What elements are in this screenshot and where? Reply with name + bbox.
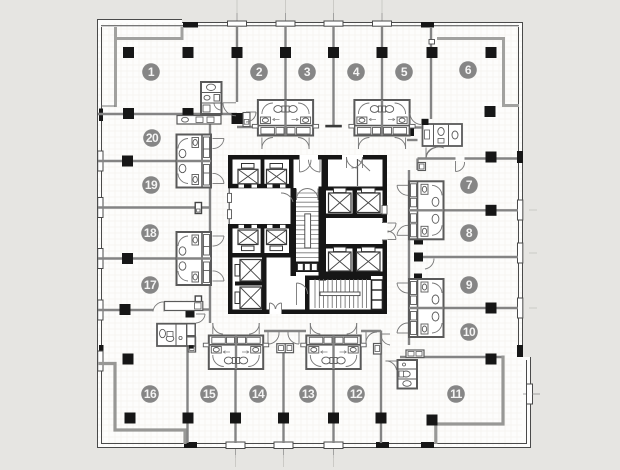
svg-text:17: 17 bbox=[144, 278, 157, 292]
svg-text:3: 3 bbox=[304, 65, 311, 79]
svg-text:13: 13 bbox=[302, 387, 315, 401]
svg-text:1: 1 bbox=[148, 65, 155, 79]
svg-text:7: 7 bbox=[466, 178, 473, 192]
svg-text:15: 15 bbox=[203, 387, 216, 401]
svg-text:10: 10 bbox=[463, 325, 476, 339]
svg-text:8: 8 bbox=[466, 226, 473, 240]
svg-text:19: 19 bbox=[145, 178, 158, 192]
svg-text:6: 6 bbox=[465, 63, 472, 77]
svg-text:11: 11 bbox=[450, 387, 463, 401]
svg-text:18: 18 bbox=[144, 226, 157, 240]
svg-text:9: 9 bbox=[466, 278, 473, 292]
svg-text:5: 5 bbox=[401, 65, 408, 79]
svg-text:16: 16 bbox=[144, 387, 157, 401]
svg-text:4: 4 bbox=[353, 65, 360, 79]
svg-text:2: 2 bbox=[256, 65, 263, 79]
svg-text:14: 14 bbox=[252, 387, 265, 401]
svg-text:20: 20 bbox=[146, 131, 159, 145]
svg-text:12: 12 bbox=[350, 387, 363, 401]
